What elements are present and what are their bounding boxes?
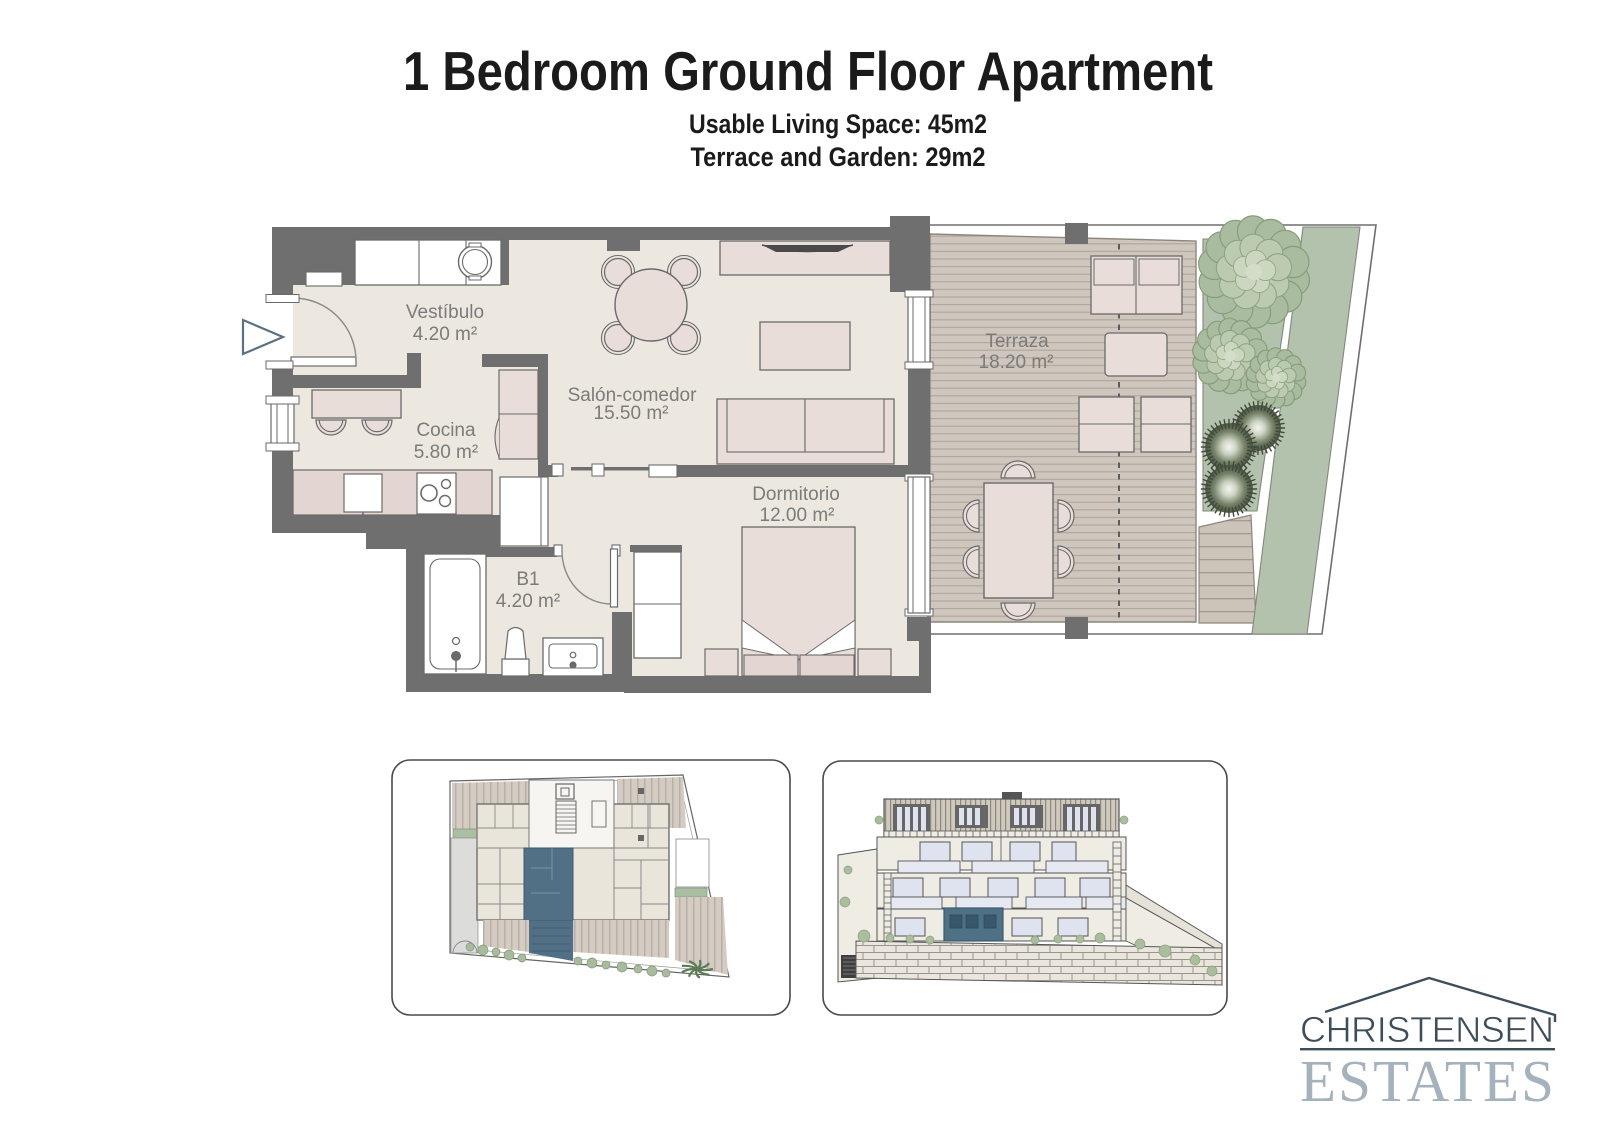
svg-text:1 Bedroom Ground Floor Apartme: 1 Bedroom Ground Floor Apartment — [403, 40, 1213, 102]
svg-text:Terraza: Terraza — [985, 331, 1049, 352]
svg-text:Terrace and Garden: 29m2: Terrace and Garden: 29m2 — [691, 142, 986, 172]
svg-text:B1: B1 — [516, 569, 539, 590]
svg-text:18.20 m²: 18.20 m² — [979, 352, 1054, 373]
svg-text:4.20 m²: 4.20 m² — [496, 591, 560, 612]
svg-text:Usable Living Space: 45m2: Usable Living Space: 45m2 — [689, 109, 987, 139]
svg-text:CHRISTENSEN: CHRISTENSEN — [1300, 1009, 1554, 1050]
svg-text:4.20 m²: 4.20 m² — [413, 324, 477, 345]
svg-text:Cocina: Cocina — [416, 420, 476, 441]
svg-text:15.50 m²: 15.50 m² — [594, 403, 669, 424]
svg-text:ESTATES: ESTATES — [1300, 1048, 1554, 1114]
svg-text:12.00 m²: 12.00 m² — [760, 505, 835, 526]
svg-text:Dormitorio: Dormitorio — [752, 484, 840, 505]
svg-text:Vestíbulo: Vestíbulo — [406, 302, 484, 323]
svg-text:5.80 m²: 5.80 m² — [414, 442, 478, 463]
